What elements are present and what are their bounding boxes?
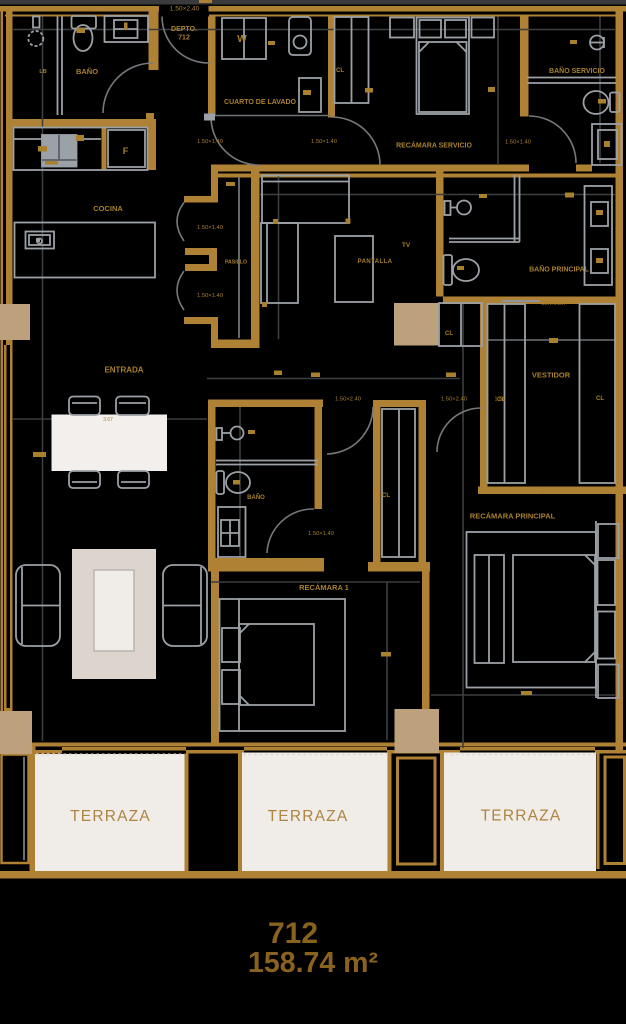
- svg-text:PANTALLA: PANTALLA: [358, 259, 393, 265]
- svg-text:1.50×1.40: 1.50×1.40: [505, 140, 531, 146]
- svg-text:RECÁMARA 1: RECÁMARA 1: [299, 583, 349, 592]
- svg-text:1.50×2.40: 1.50×2.40: [441, 397, 467, 403]
- svg-text:TERRAZA: TERRAZA: [268, 808, 349, 825]
- svg-text:1.50×1.40: 1.50×1.40: [197, 293, 223, 299]
- svg-text:712: 712: [178, 35, 190, 42]
- svg-text:RECÁMARA PRINCIPAL: RECÁMARA PRINCIPAL: [470, 512, 556, 521]
- svg-text:W: W: [237, 34, 247, 45]
- svg-text:CERRADA: CERRADA: [541, 490, 566, 496]
- svg-text:PASILLO: PASILLO: [225, 260, 247, 266]
- svg-text:BAÑO SERVICIO: BAÑO SERVICIO: [549, 66, 605, 75]
- svg-text:ENTRADA: ENTRADA: [104, 366, 143, 375]
- svg-text:COCINA: COCINA: [93, 204, 123, 213]
- svg-text:F: F: [123, 146, 129, 156]
- svg-text:CERRADA: CERRADA: [541, 301, 566, 307]
- svg-text:1.50×1.40: 1.50×1.40: [197, 225, 223, 231]
- svg-text:CL: CL: [336, 68, 344, 74]
- svg-text:CL: CL: [445, 331, 453, 337]
- svg-text:158.74 m²: 158.74 m²: [248, 947, 378, 979]
- svg-text:CL: CL: [596, 396, 604, 402]
- svg-text:1.50×1.40: 1.50×1.40: [197, 139, 223, 145]
- svg-text:CL: CL: [382, 493, 390, 499]
- svg-text:DEPTO.: DEPTO.: [171, 26, 197, 33]
- svg-text:1.50×2.40: 1.50×2.40: [335, 397, 361, 403]
- svg-text:1.50: 1.50: [494, 397, 505, 403]
- svg-text:1.50×1.40: 1.50×1.40: [311, 139, 337, 145]
- svg-text:BAÑO PRINCIPAL: BAÑO PRINCIPAL: [529, 265, 589, 274]
- svg-text:RECÁMARA SERVICIO: RECÁMARA SERVICIO: [396, 141, 472, 150]
- svg-text:1.50×2.40: 1.50×2.40: [170, 6, 200, 13]
- svg-text:TV: TV: [402, 242, 411, 249]
- svg-text:3.67: 3.67: [103, 417, 113, 423]
- svg-text:TERRAZA: TERRAZA: [481, 808, 562, 825]
- svg-text:1.50×1.40: 1.50×1.40: [308, 531, 334, 537]
- svg-text:TERRAZA: TERRAZA: [70, 808, 151, 825]
- svg-text:BAÑO: BAÑO: [76, 67, 98, 76]
- svg-text:712: 712: [268, 917, 318, 950]
- svg-text:LB: LB: [39, 69, 46, 75]
- svg-text:VESTIDOR: VESTIDOR: [532, 371, 571, 380]
- svg-text:BAÑO: BAÑO: [247, 494, 265, 501]
- svg-text:CUARTO DE LAVADO: CUARTO DE LAVADO: [224, 99, 297, 106]
